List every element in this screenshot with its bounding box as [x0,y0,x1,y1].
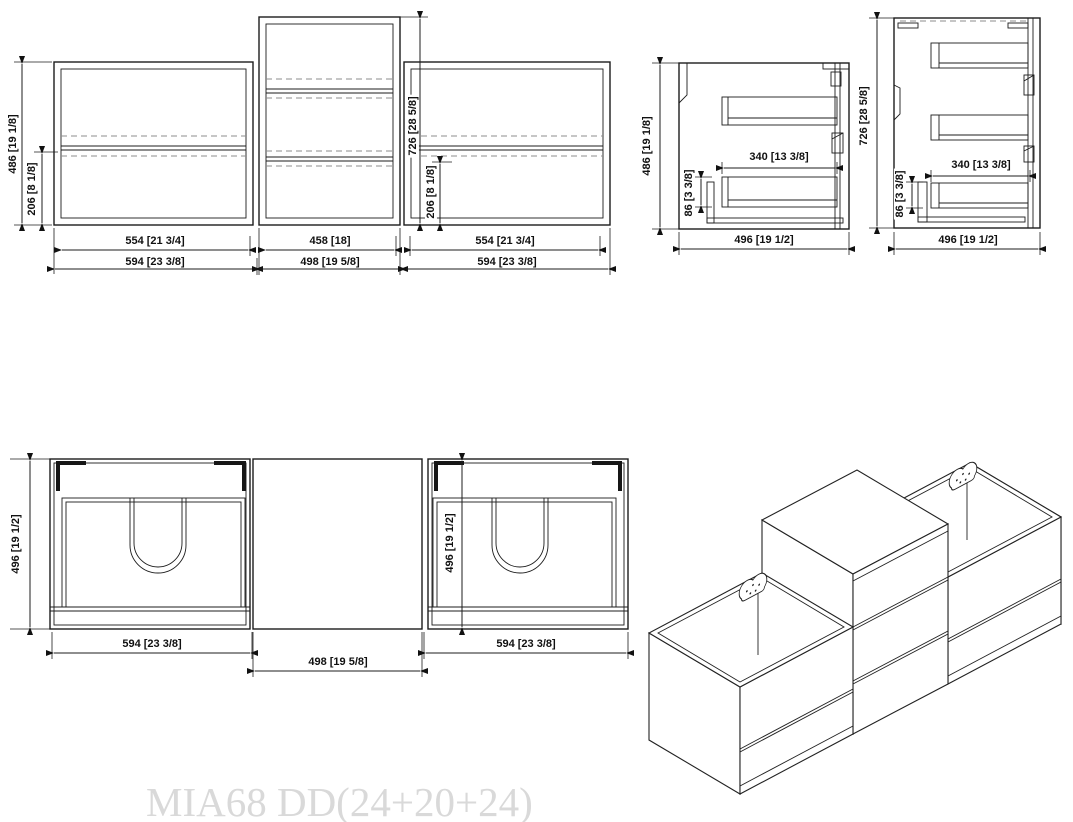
dim-front-left-cabinet-width: 554 [21 3/4] [123,235,186,247]
dim-front-right-cabinet-width: 554 [21 3/4] [473,235,536,247]
dim-side-small-rail-length: 340 [13 3/8] [747,151,810,163]
dim-front-center-cabinet-width: 458 [18] [308,235,353,247]
watermark-model-code: MIA68 DD(24+20+24) [146,778,533,822]
dim-side-tall-bottom-offset: 86 [3 3/8] [894,168,906,219]
drawing-sheet: 554 [21 3/4] 458 [18] 554 [21 3/4] 594 [… [0,0,1073,822]
dim-plan-depth-left: 496 [19 1/2] [10,512,22,575]
isometric-view-drawing [640,411,1073,822]
dim-plan-right-width: 594 [23 3/8] [494,638,557,650]
dim-front-left-overall-width: 594 [23 3/8] [123,256,186,268]
dim-front-center-height: 726 [28 5/8] [407,94,419,157]
dim-front-left-drawer-height: 206 [8 1/8] [26,160,38,217]
plan-view-drawing [0,411,640,822]
side-section-views-drawing [640,0,1073,300]
dim-side-small-height: 486 [19 1/8] [641,114,653,177]
dim-side-small-depth: 496 [19 1/2] [732,234,795,246]
dim-side-tall-rail-length: 340 [13 3/8] [949,159,1012,171]
dim-front-side-height: 486 [19 1/8] [7,112,19,175]
dim-plan-depth-right: 496 [19 1/2] [444,511,456,574]
dim-front-center-overall-width: 498 [19 5/8] [298,256,361,268]
dim-side-tall-height: 726 [28 5/8] [858,84,870,147]
dim-front-right-drawer-height: 206 [8 1/8] [425,163,437,220]
dim-plan-center-width: 498 [19 5/8] [306,656,369,668]
dim-side-small-bottom-offset: 86 [3 3/8] [683,167,695,218]
dim-side-tall-depth: 496 [19 1/2] [936,234,999,246]
dim-plan-left-width: 594 [23 3/8] [120,638,183,650]
dim-front-right-overall-width: 594 [23 3/8] [475,256,538,268]
